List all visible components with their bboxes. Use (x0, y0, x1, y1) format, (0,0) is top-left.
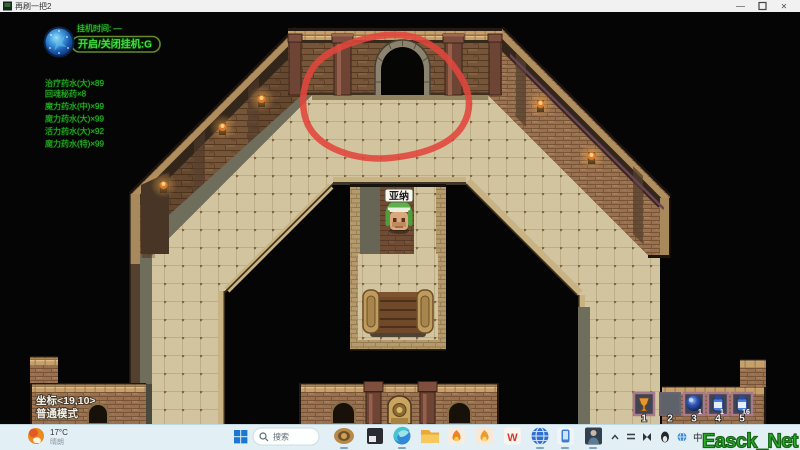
svg-text:开启/关闭挂机:G: 开启/关闭挂机:G (78, 38, 152, 51)
svg-text:3: 3 (691, 414, 697, 425)
svg-text:普通模式: 普通模式 (36, 407, 78, 420)
svg-text:晴朗: 晴朗 (50, 437, 64, 446)
svg-text:2: 2 (667, 414, 673, 425)
svg-text:1: 1 (698, 409, 702, 416)
svg-text:Easck_Net: Easck_Net (702, 431, 799, 450)
svg-text:搜索: 搜索 (273, 432, 289, 442)
svg-text:×: × (781, 2, 787, 13)
svg-text:5: 5 (739, 414, 745, 425)
svg-text:活力药水(大)×92: 活力药水(大)×92 (45, 126, 104, 136)
svg-text:再刷一把2: 再刷一把2 (15, 1, 52, 11)
svg-text:挂机时间: —: 挂机时间: — (77, 23, 121, 33)
svg-text:治疗药水(大)×89: 治疗药水(大)×89 (45, 78, 104, 88)
svg-text:4: 4 (715, 414, 721, 425)
svg-text:1: 1 (641, 414, 647, 425)
svg-text:17°C: 17°C (50, 428, 68, 437)
svg-text:—: — (736, 1, 745, 11)
svg-text:魔力药水(特)×99: 魔力药水(特)×99 (45, 139, 104, 149)
svg-text:回魂秘药×8: 回魂秘药×8 (45, 89, 87, 99)
svg-text:W: W (507, 432, 518, 444)
svg-text:亚纳: 亚纳 (389, 190, 409, 203)
svg-text:魔力药水(大)×99: 魔力药水(大)×99 (45, 114, 104, 124)
svg-text:坐标<19,10>: 坐标<19,10> (36, 394, 96, 407)
svg-text:魔力药水(中)×99: 魔力药水(中)×99 (45, 101, 104, 111)
